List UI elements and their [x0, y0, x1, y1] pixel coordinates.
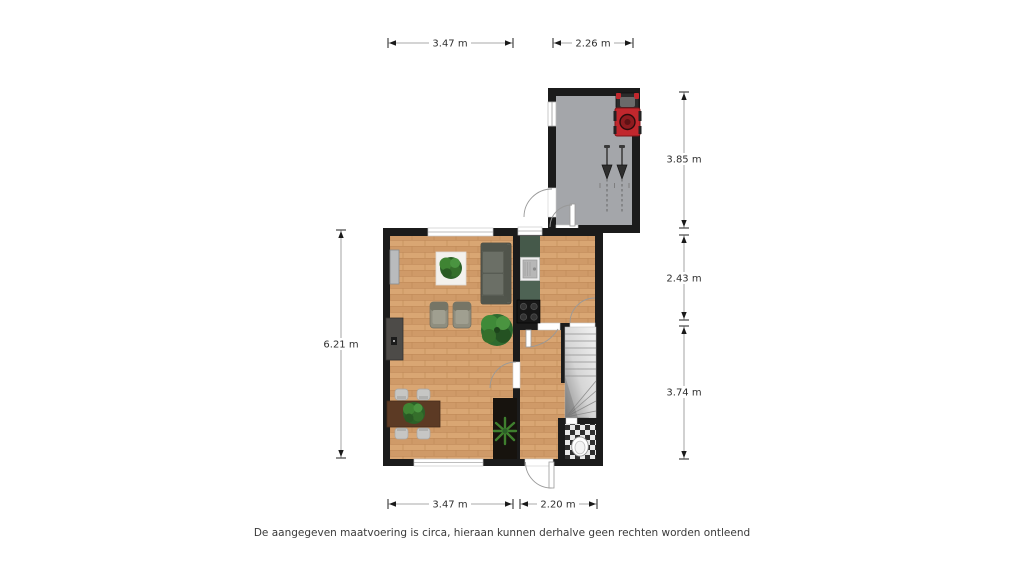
dim-label: 3.85 m: [666, 155, 701, 166]
window-icon: [428, 228, 493, 236]
rug-plant-icon: [436, 252, 466, 285]
dim-label: 6.21 m: [323, 340, 358, 351]
dimension-right-kitchen: 2.43 m: [663, 235, 705, 320]
floorplan-page: 3.47 m 2.26 m 3.85 m 2.43 m: [0, 0, 1024, 576]
tv-panel-icon: [390, 250, 399, 284]
disclaimer-text: De aangegeven maatvoering is circa, hier…: [254, 527, 750, 539]
sofa-icon: [481, 243, 511, 304]
dim-label: 2.43 m: [666, 274, 701, 285]
dim-label: 3.74 m: [666, 388, 701, 399]
armchair-icon: [430, 302, 448, 328]
stairs-icon: [565, 327, 596, 418]
main-block: [383, 227, 603, 488]
dimension-top-garage: 2.26 m: [553, 37, 633, 50]
kitchen-counter-icon: [517, 236, 540, 323]
window-icon: [548, 102, 556, 126]
dim-label: 2.20 m: [540, 500, 575, 511]
garage-room: [524, 88, 642, 233]
dimension-top-living: 3.47 m: [388, 37, 513, 50]
sideboard-icon: [386, 318, 403, 360]
window-icon: [414, 459, 483, 466]
cooktop-icon: [517, 300, 540, 323]
stair-wall: [561, 327, 565, 383]
dim-label: 2.26 m: [575, 39, 610, 50]
bathroom: [558, 418, 603, 466]
dimension-left-living: 6.21 m: [320, 230, 362, 458]
dim-label: 3.47 m: [432, 39, 467, 50]
sink-icon: [521, 258, 540, 281]
window-icon: [518, 227, 542, 235]
toilet-icon: [572, 437, 589, 456]
lawnmower-icon: [614, 93, 642, 136]
plant-icon: [481, 314, 513, 346]
floorplan-svg: 3.47 m 2.26 m 3.85 m 2.43 m: [0, 0, 1024, 576]
dim-label: 3.47 m: [432, 500, 467, 511]
palm-plant-icon: [493, 398, 517, 459]
door-swing-icon: [524, 188, 556, 217]
dimension-bottom-hall: 2.20 m: [520, 498, 597, 511]
dimension-right-garage: 3.85 m: [663, 92, 705, 228]
dimension-right-hall: 3.74 m: [663, 326, 705, 459]
dimension-bottom-living: 3.47 m: [388, 498, 513, 511]
armchair-icon: [453, 302, 471, 328]
front-door-icon: [525, 459, 554, 488]
